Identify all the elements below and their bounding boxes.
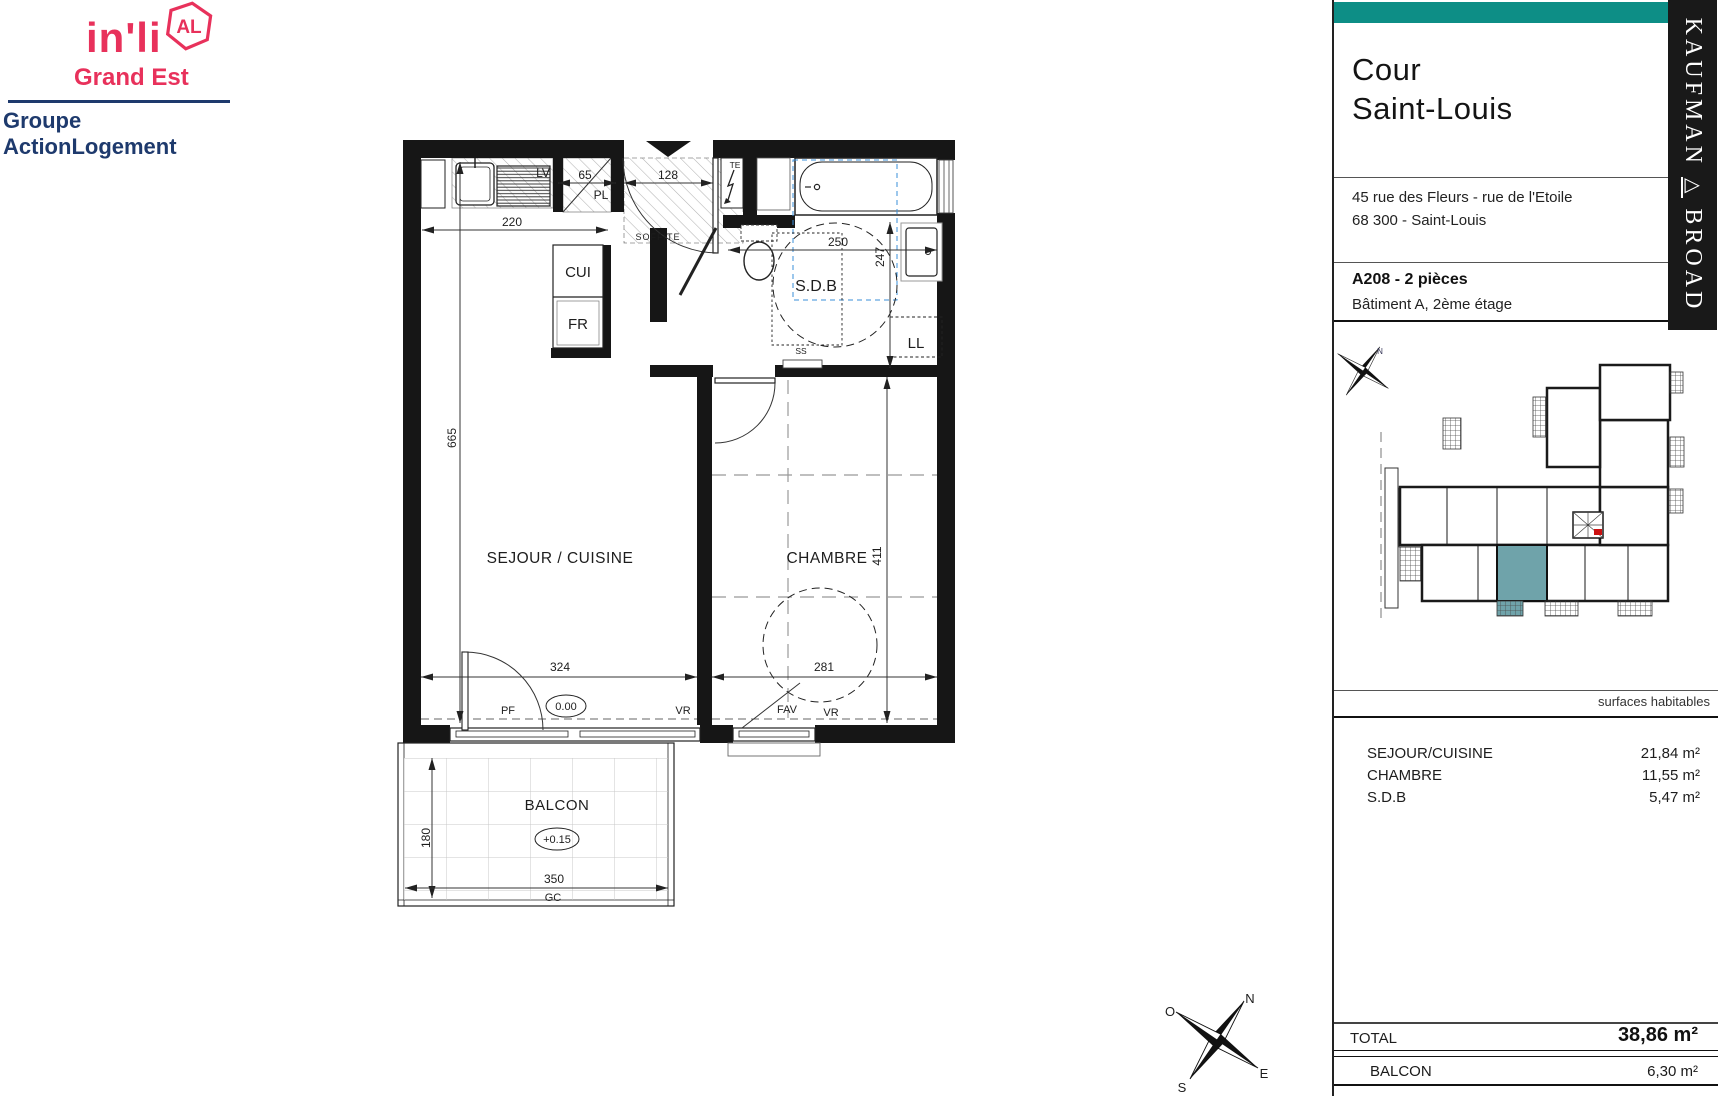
compass-e: E: [1260, 1066, 1269, 1081]
developer-name-right: BROAD: [1679, 208, 1706, 312]
bedroom-door-leaf: [715, 378, 775, 383]
level-floor: 0.00: [555, 701, 576, 713]
delta-icon: △: [1682, 177, 1704, 198]
toilet: [744, 242, 774, 280]
label-balcon: BALCON: [525, 797, 590, 814]
unit-floor: Bâtiment A, 2ème étage: [1352, 296, 1512, 313]
surface-row-label: CHAMBRE: [1367, 767, 1442, 784]
label-soffite: SOFFITE: [636, 232, 681, 242]
label-living: SEJOUR / CUISINE: [487, 550, 634, 567]
dim-sdb-width: 250: [828, 235, 848, 249]
divider: [1334, 320, 1670, 322]
surface-row-label: S.D.B: [1367, 789, 1406, 806]
compass-star-icon: [1176, 1001, 1258, 1079]
project-title-line2: Saint-Louis: [1352, 89, 1513, 128]
total-value: 38,86 m²: [1618, 1024, 1698, 1047]
balcony: [398, 743, 674, 906]
dim-bedroom-height: 411: [870, 546, 884, 565]
wc-tank: [741, 225, 777, 241]
dim-entry: 128: [658, 168, 678, 182]
accent-bar: [1334, 2, 1670, 23]
address-line2: 68 300 - Saint-Louis: [1352, 209, 1572, 232]
label-pf: PF: [501, 705, 515, 717]
surfaces-header: surfaces habitables: [1598, 694, 1710, 709]
bathroom-window: [939, 160, 953, 213]
total-label: TOTAL: [1350, 1030, 1397, 1047]
bedroom-door-arc: [715, 383, 775, 443]
divider: [1334, 1050, 1718, 1051]
compass-rose: N E S O: [1165, 991, 1269, 1095]
entry-niche: [757, 158, 790, 210]
balcony-label: BALCON: [1370, 1063, 1432, 1080]
divider: [1334, 262, 1670, 263]
dim-balcony-width: 350: [544, 872, 564, 886]
label-gc: GC: [545, 892, 562, 904]
surface-row-label: SEJOUR/CUISINE: [1367, 745, 1493, 762]
label-cui: CUI: [565, 264, 591, 281]
balcony-door-leaf: [462, 652, 468, 730]
compass-s: S: [1178, 1080, 1187, 1095]
compass-n: N: [1245, 991, 1254, 1006]
label-vr-right: VR: [823, 707, 838, 719]
label-te: TE: [730, 160, 741, 170]
balcony-value: 6,30 m²: [1647, 1063, 1698, 1080]
developer-name-left: KAUFMAN: [1679, 18, 1706, 167]
dim-living-height: 665: [445, 428, 459, 448]
label-ll: LL: [908, 335, 925, 352]
developer-logo: KAUFMAN △ BROAD: [1668, 0, 1717, 330]
divider: [1334, 1056, 1718, 1057]
surface-row-value: 21,84 m²: [1641, 745, 1700, 762]
label-sdb: S.D.B: [795, 278, 837, 295]
label-ss: SS: [795, 346, 807, 356]
divider: [1334, 716, 1718, 718]
dim-balcony-depth: 180: [419, 828, 433, 848]
label-vr-left: VR: [675, 705, 690, 717]
project-address: 45 rue des Fleurs - rue de l'Etoile 68 3…: [1352, 186, 1572, 232]
developer-logo-text: KAUFMAN △ BROAD: [1668, 0, 1717, 330]
divider: [1334, 690, 1718, 691]
vanity: [901, 223, 942, 281]
divider: [1334, 1084, 1718, 1086]
label-pl: PL: [594, 188, 609, 202]
surface-row-value: 11,55 m²: [1642, 767, 1700, 784]
project-title-line1: Cour: [1352, 50, 1513, 89]
dim-living-width: 324: [550, 660, 570, 674]
label-bedroom: CHAMBRE: [786, 550, 867, 567]
compass-o: O: [1165, 1004, 1175, 1019]
label-fr: FR: [568, 316, 588, 333]
divider: [1334, 177, 1670, 178]
dim-pl: 65: [578, 168, 592, 182]
balcony-door-arc: [465, 652, 543, 730]
surface-row-value: 5,47 m²: [1649, 789, 1700, 806]
info-panel: Cour Saint-Louis 45 rue des Fleurs - rue…: [1332, 0, 1722, 1096]
dim-kitchen: 220: [502, 215, 522, 229]
project-title: Cour Saint-Louis: [1352, 50, 1513, 128]
address-line1: 45 rue des Fleurs - rue de l'Etoile: [1352, 186, 1572, 209]
dim-bedroom-width: 281: [814, 660, 834, 674]
entry-marker-triangle: [646, 141, 691, 157]
turning-circle-bedroom: [763, 588, 877, 702]
bathtub: [795, 158, 937, 215]
label-fav: FAV: [777, 704, 798, 716]
level-balcony: +0.15: [543, 834, 571, 846]
unit-reference: A208 - 2 pièces: [1352, 271, 1468, 289]
dim-sdb-depth: 247: [873, 247, 887, 267]
label-lv: LV: [536, 166, 550, 180]
entry-door-leaf: [713, 158, 718, 253]
